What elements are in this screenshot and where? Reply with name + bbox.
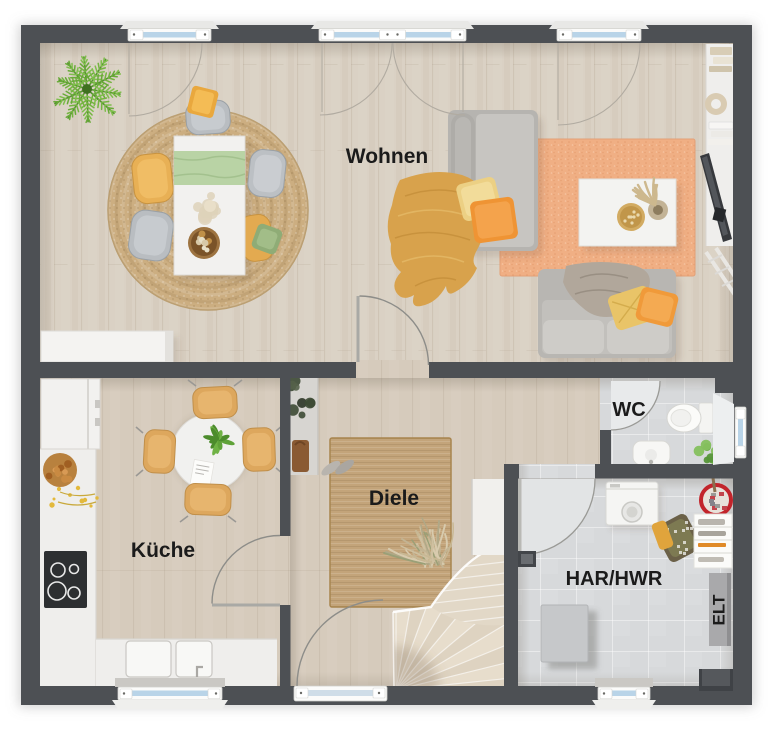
svg-text:WC: WC [612,399,645,421]
svg-text:Wohnen: Wohnen [346,145,428,168]
svg-text:ELT: ELT [709,594,728,625]
svg-text:Diele: Diele [369,487,419,510]
svg-text:HAR/HWR: HAR/HWR [566,568,663,590]
svg-text:Küche: Küche [131,539,195,562]
